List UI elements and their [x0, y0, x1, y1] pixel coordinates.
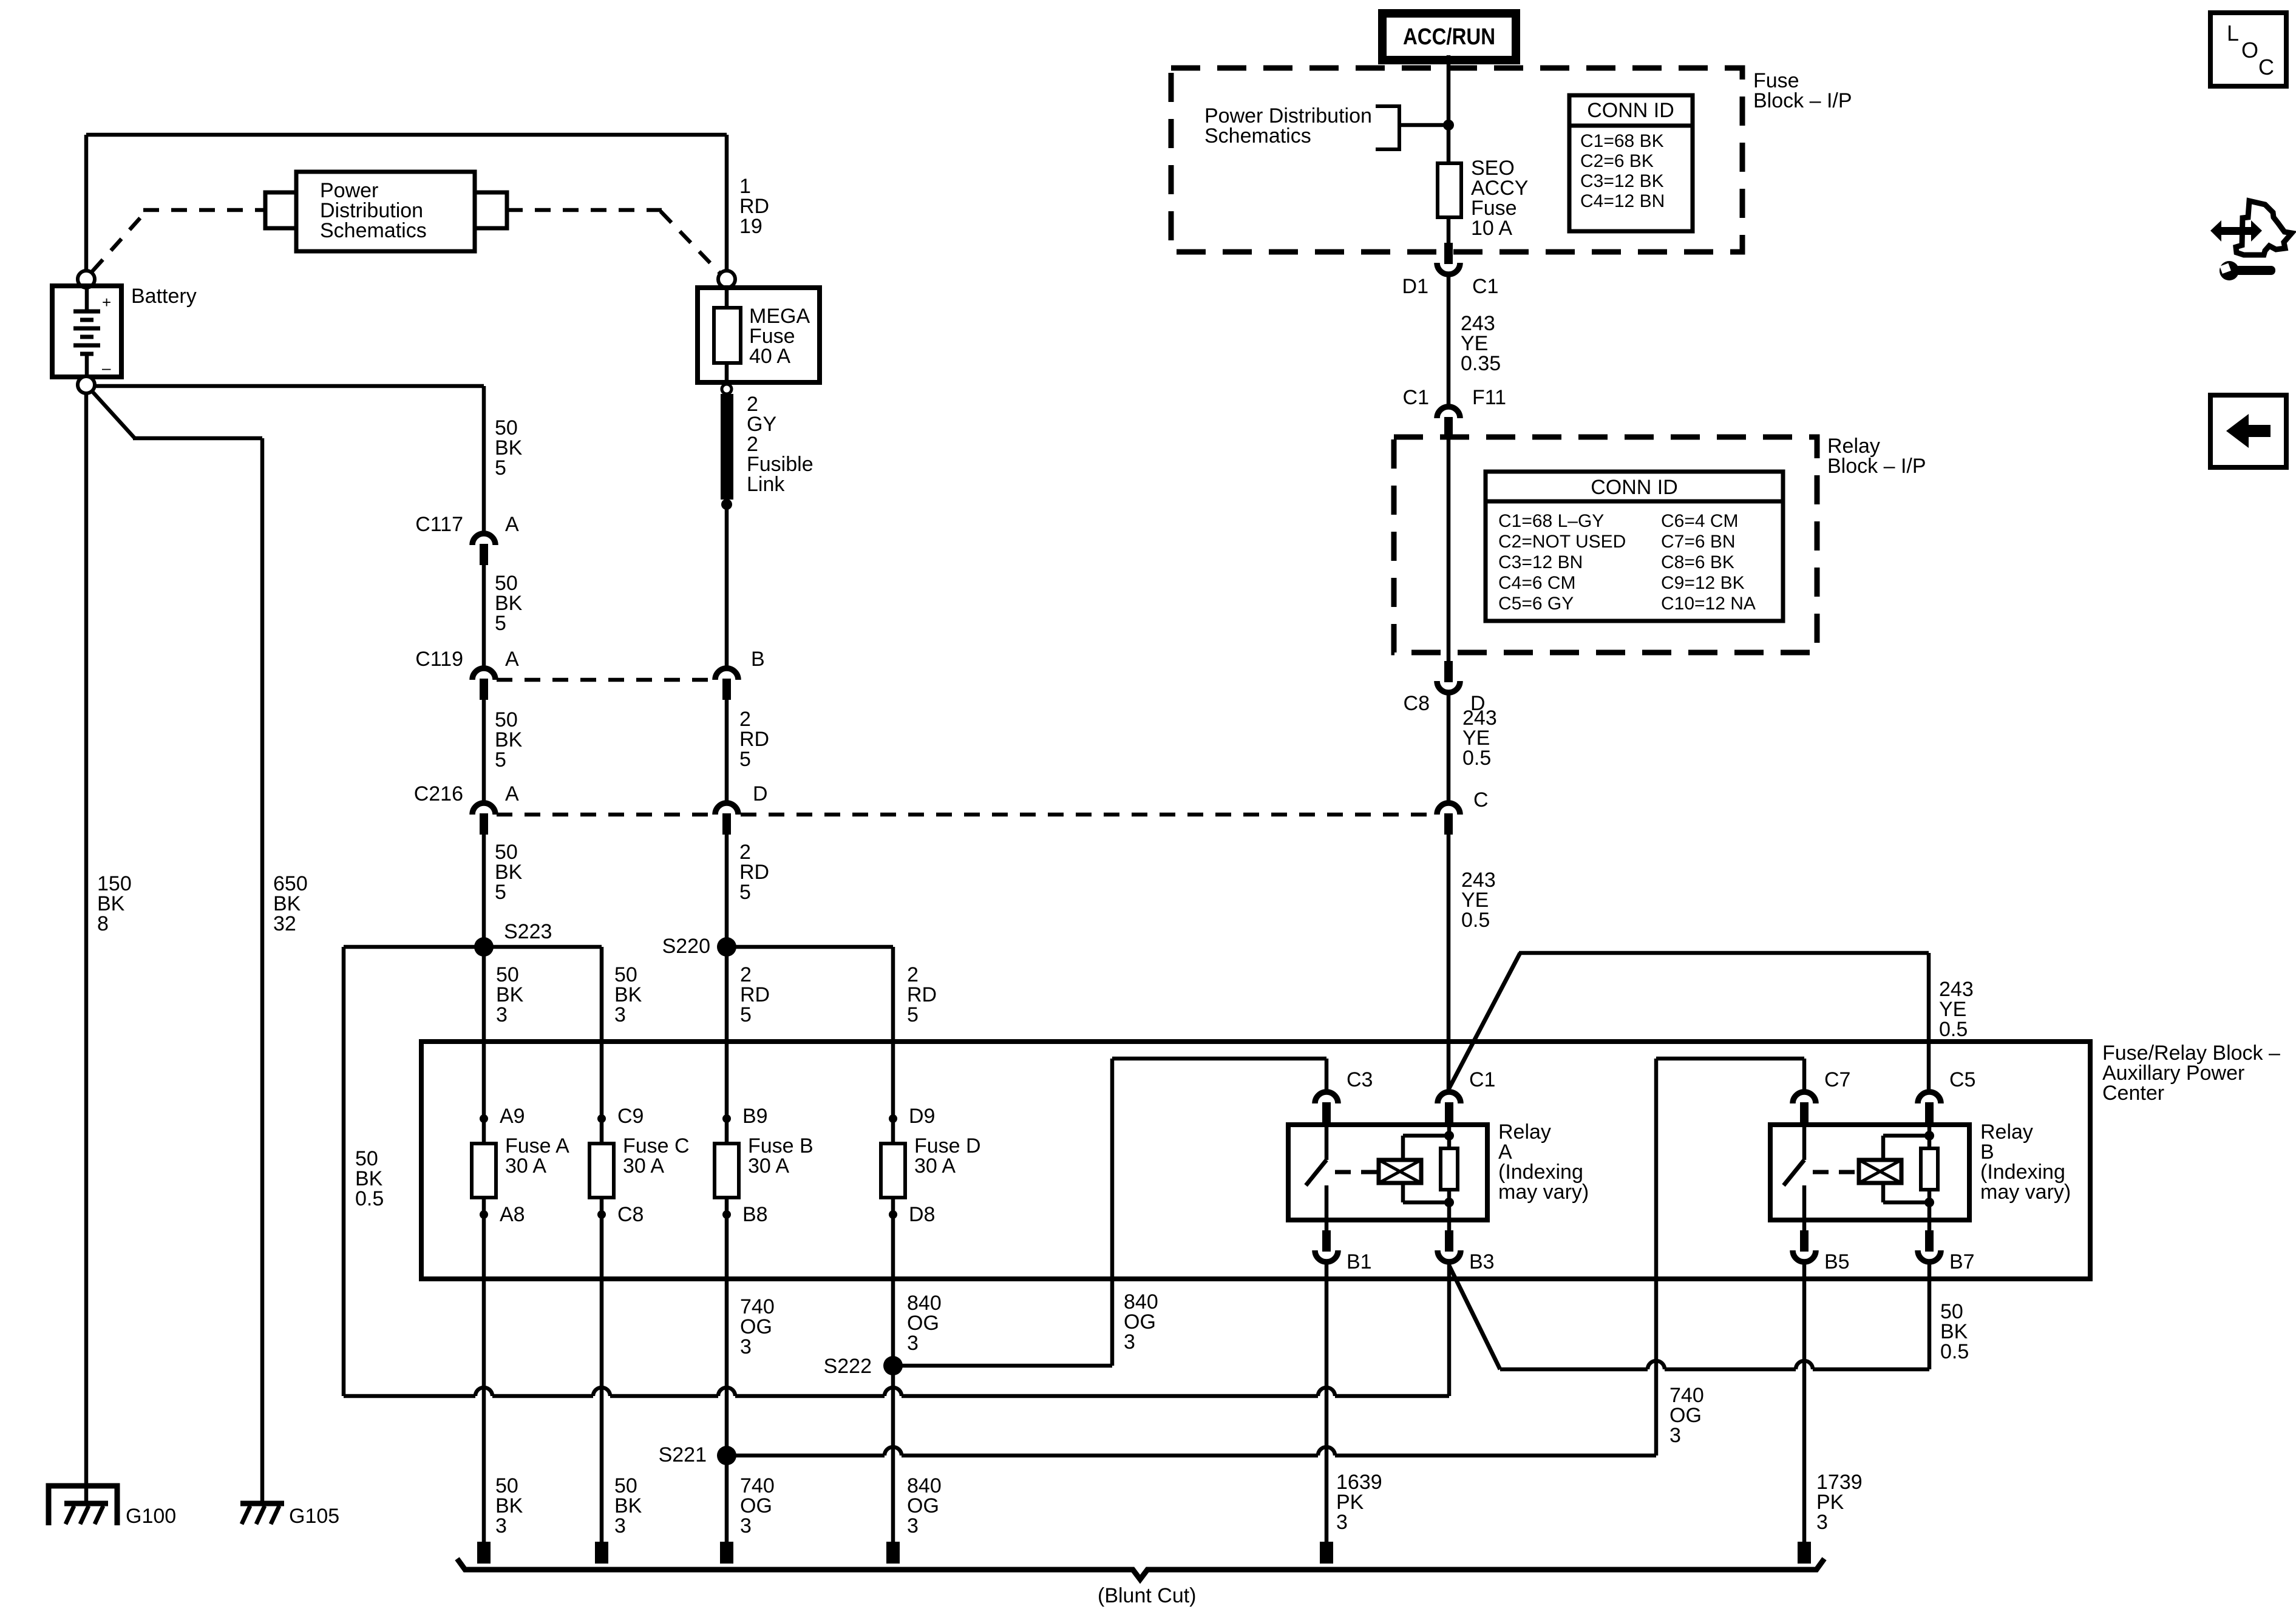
- svg-text:A: A: [505, 513, 519, 536]
- svg-text:C6=4 CM: C6=4 CM: [1661, 511, 1739, 531]
- svg-text:D1: D1: [1402, 275, 1428, 298]
- svg-text:5: 5: [740, 1003, 752, 1026]
- svg-text:5: 5: [495, 456, 506, 480]
- svg-text:3: 3: [907, 1332, 919, 1355]
- svg-text:(Blunt Cut): (Blunt Cut): [1098, 1584, 1197, 1607]
- svg-text:C9=12 BK: C9=12 BK: [1661, 573, 1745, 593]
- svg-text:C5: C5: [1949, 1068, 1975, 1091]
- svg-text:3: 3: [740, 1514, 752, 1537]
- svg-text:C1: C1: [1469, 1068, 1495, 1091]
- svg-text:C: C: [2258, 55, 2274, 80]
- svg-text:8: 8: [97, 912, 109, 935]
- svg-text:C: C: [1473, 788, 1489, 812]
- svg-text:3: 3: [1816, 1511, 1828, 1534]
- svg-text:Schematics: Schematics: [1204, 124, 1311, 147]
- svg-text:Link: Link: [747, 473, 785, 496]
- svg-text:D9: D9: [909, 1105, 935, 1128]
- svg-text:may vary): may vary): [1498, 1181, 1589, 1204]
- svg-text:C4=6 CM: C4=6 CM: [1498, 573, 1576, 593]
- svg-text:D8: D8: [909, 1203, 935, 1226]
- svg-text:Block – I/P: Block – I/P: [1753, 89, 1852, 112]
- svg-text:40 A: 40 A: [749, 345, 790, 368]
- svg-text:CONN ID: CONN ID: [1591, 476, 1678, 499]
- svg-text:C5=6 GY: C5=6 GY: [1498, 594, 1574, 614]
- svg-text:A8: A8: [500, 1203, 525, 1226]
- svg-text:C1=68 L–GY: C1=68 L–GY: [1498, 511, 1604, 531]
- svg-text:3: 3: [1336, 1511, 1348, 1534]
- svg-text:C9: C9: [617, 1105, 644, 1128]
- svg-text:B: B: [751, 648, 765, 671]
- svg-text:0.5: 0.5: [1940, 1340, 1969, 1363]
- svg-text:C7: C7: [1824, 1068, 1850, 1091]
- svg-text:0.5: 0.5: [1462, 747, 1491, 770]
- svg-text:C4=12 BN: C4=12 BN: [1580, 191, 1665, 211]
- svg-text:C216: C216: [414, 782, 463, 805]
- svg-text:C2=6 BK: C2=6 BK: [1580, 151, 1654, 171]
- svg-text:5: 5: [907, 1003, 919, 1026]
- svg-text:C8=6 BK: C8=6 BK: [1661, 552, 1734, 572]
- svg-text:may vary): may vary): [1980, 1181, 2071, 1204]
- svg-text:C7=6 BN: C7=6 BN: [1661, 532, 1736, 552]
- svg-text:3: 3: [496, 1003, 508, 1026]
- svg-text:3: 3: [740, 1335, 752, 1358]
- svg-text:3: 3: [1669, 1424, 1681, 1447]
- svg-text:C1=68 BK: C1=68 BK: [1580, 131, 1664, 151]
- svg-text:D: D: [753, 782, 768, 805]
- svg-text:0.5: 0.5: [355, 1187, 384, 1210]
- svg-text:G100: G100: [126, 1505, 176, 1528]
- svg-text:5: 5: [495, 612, 506, 635]
- svg-text:A: A: [505, 782, 519, 805]
- svg-text:C10=12 NA: C10=12 NA: [1661, 594, 1756, 614]
- svg-text:5: 5: [495, 881, 506, 904]
- svg-text:30 A: 30 A: [914, 1154, 956, 1178]
- svg-text:S223: S223: [504, 920, 552, 943]
- svg-text:A: A: [505, 648, 519, 671]
- svg-text:B8: B8: [742, 1203, 768, 1226]
- svg-text:C1: C1: [1403, 386, 1429, 409]
- svg-text:B5: B5: [1824, 1250, 1850, 1273]
- svg-text:C3=12 BK: C3=12 BK: [1580, 171, 1664, 191]
- svg-text:3: 3: [495, 1514, 507, 1537]
- svg-text:ACC/RUN: ACC/RUN: [1403, 24, 1495, 50]
- svg-text:3: 3: [907, 1514, 919, 1537]
- svg-text:3: 3: [614, 1003, 626, 1026]
- svg-text:A9: A9: [500, 1105, 525, 1128]
- svg-text:B7: B7: [1949, 1250, 1975, 1273]
- svg-text:30 A: 30 A: [505, 1154, 546, 1178]
- svg-text:L: L: [2227, 21, 2239, 46]
- svg-text:G105: G105: [289, 1505, 339, 1528]
- svg-text:5: 5: [739, 748, 751, 771]
- svg-text:C3: C3: [1347, 1068, 1373, 1091]
- svg-text:B9: B9: [742, 1105, 768, 1128]
- svg-text:0.5: 0.5: [1939, 1018, 1968, 1041]
- svg-text:3: 3: [614, 1514, 626, 1537]
- svg-text:C119: C119: [415, 648, 463, 671]
- svg-text:C8: C8: [1404, 692, 1430, 715]
- svg-text:19: 19: [739, 215, 763, 238]
- svg-text:Battery: Battery: [131, 285, 197, 308]
- svg-text:C1: C1: [1472, 275, 1498, 298]
- svg-text:CONN ID: CONN ID: [1587, 99, 1674, 122]
- svg-text:0.5: 0.5: [1461, 909, 1490, 932]
- svg-text:C8: C8: [617, 1203, 644, 1226]
- svg-text:Center: Center: [2102, 1082, 2164, 1105]
- svg-text:C117: C117: [415, 513, 463, 536]
- svg-text:–: –: [102, 359, 111, 377]
- svg-text:32: 32: [273, 912, 296, 935]
- svg-text:3: 3: [1124, 1330, 1135, 1354]
- svg-text:Schematics: Schematics: [320, 219, 427, 242]
- svg-text:S221: S221: [659, 1443, 707, 1466]
- svg-text:C3=12 BN: C3=12 BN: [1498, 552, 1583, 572]
- svg-text:0.35: 0.35: [1461, 352, 1501, 375]
- svg-text:C2=NOT USED: C2=NOT USED: [1498, 532, 1626, 552]
- svg-text:B1: B1: [1347, 1250, 1372, 1273]
- svg-text:+: +: [102, 293, 111, 311]
- svg-text:F11: F11: [1472, 386, 1506, 409]
- svg-text:5: 5: [739, 881, 751, 904]
- svg-text:B3: B3: [1469, 1250, 1495, 1273]
- svg-text:30 A: 30 A: [623, 1154, 664, 1178]
- svg-text:Block – I/P: Block – I/P: [1827, 455, 1926, 478]
- svg-text:S222: S222: [824, 1355, 872, 1378]
- svg-text:5: 5: [495, 748, 506, 771]
- svg-text:O: O: [2241, 38, 2258, 63]
- svg-text:S220: S220: [662, 935, 710, 958]
- svg-text:30 A: 30 A: [748, 1154, 789, 1178]
- svg-text:10 A: 10 A: [1471, 217, 1512, 240]
